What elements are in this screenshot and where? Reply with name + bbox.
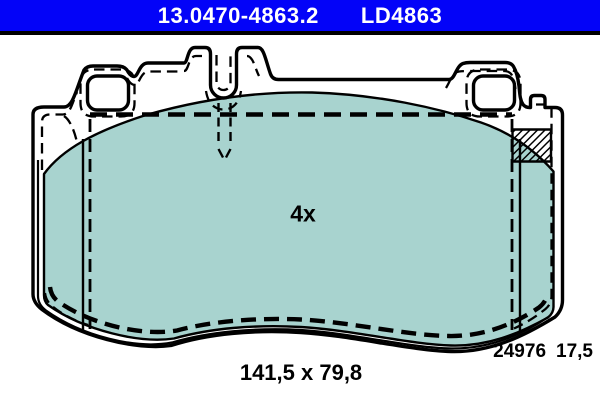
- mounting-hole-right: [474, 76, 515, 110]
- wear-indicator-hatch: [513, 130, 552, 162]
- drawing-number: 24976: [493, 341, 546, 363]
- quantity-label: 4x: [290, 201, 316, 228]
- reference-label: 24976 17,5: [493, 341, 593, 363]
- dimensions-label: 141,5 x 79,8: [240, 360, 362, 386]
- thickness-value: 17,5: [556, 341, 593, 363]
- mounting-hole-left: [88, 76, 129, 110]
- brake-pad-diagram-page: 13.0470-4863.2 LD4863: [0, 0, 600, 400]
